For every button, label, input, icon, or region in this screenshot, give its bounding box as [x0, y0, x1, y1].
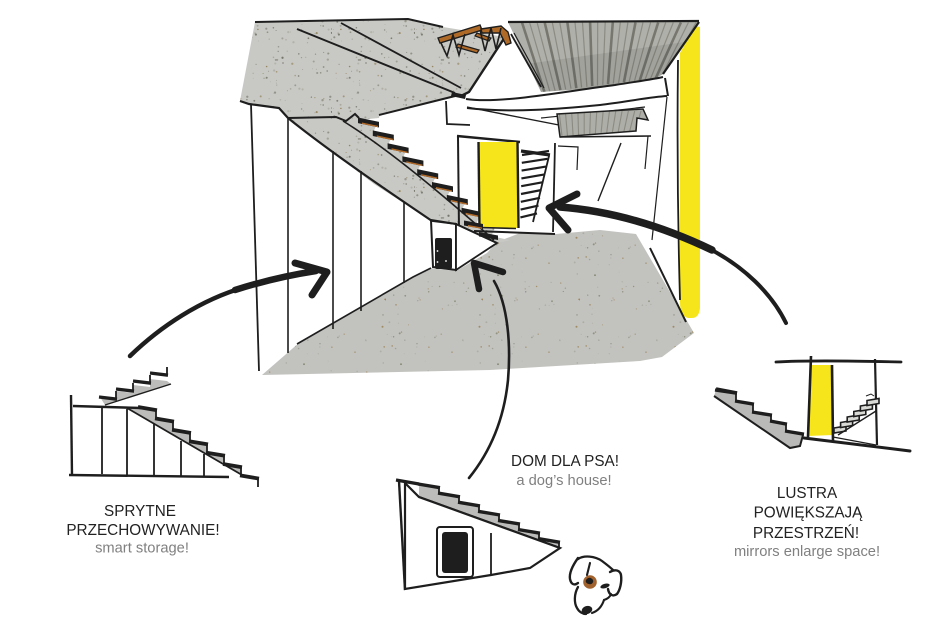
svg-text:mirrors enlarge space!: mirrors enlarge space! — [734, 544, 880, 560]
svg-text:a dog’s house!: a dog’s house! — [516, 473, 611, 489]
svg-text:PRZECHOWYWANIE!: PRZECHOWYWANIE! — [66, 522, 219, 539]
svg-text:LUSTRA: LUSTRA — [777, 485, 838, 502]
svg-text:PRZESTRZEŃ!: PRZESTRZEŃ! — [753, 525, 859, 542]
svg-text:SPRYTNE: SPRYTNE — [104, 503, 176, 520]
svg-text:DOM DLA PSA!: DOM DLA PSA! — [511, 453, 619, 470]
svg-text:POWIĘKSZAJĄ: POWIĘKSZAJĄ — [754, 505, 864, 522]
svg-text:smart storage!: smart storage! — [95, 541, 189, 557]
